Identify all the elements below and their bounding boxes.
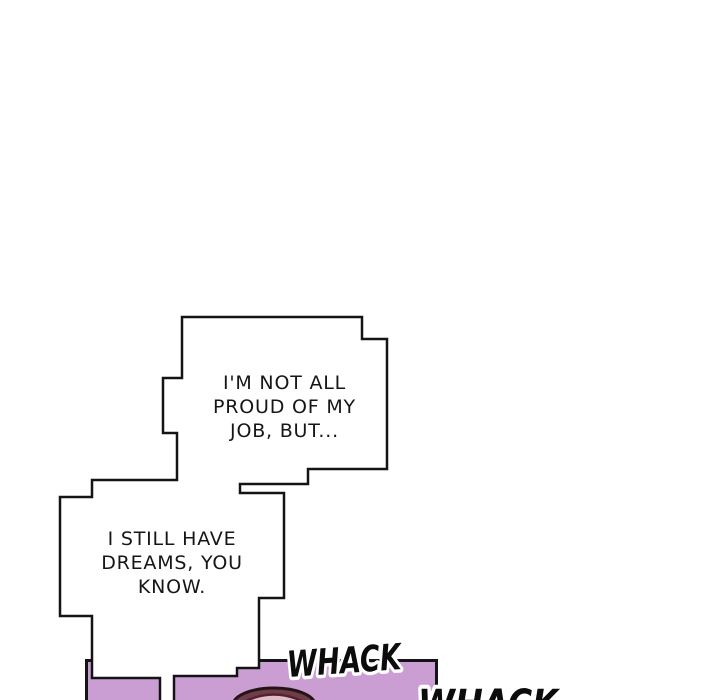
speech-bubble-1-text: I'M NOT ALL PROUD OF MY JOB, BUT... [182,371,387,443]
bubble-1-line-1: I'M NOT ALL [182,371,387,395]
bubble-1-line-2: PROUD OF MY [182,395,387,419]
bubble-2-line-1: I STILL HAVE [60,527,284,551]
bubble-2-line-3: KNOW. [60,575,284,599]
comic-page: WHACK WHACK I'M NOT ALL PROUD OF MY JOB,… [0,0,720,700]
sfx-whack-partial: WHACK [418,682,560,700]
speech-bubble-2-text: I STILL HAVE DREAMS, YOU KNOW. [60,527,284,599]
bubble-2-line-2: DREAMS, YOU [60,551,284,575]
sfx-whack: WHACK [286,637,405,686]
bubble-1-line-3: JOB, BUT... [182,419,387,443]
